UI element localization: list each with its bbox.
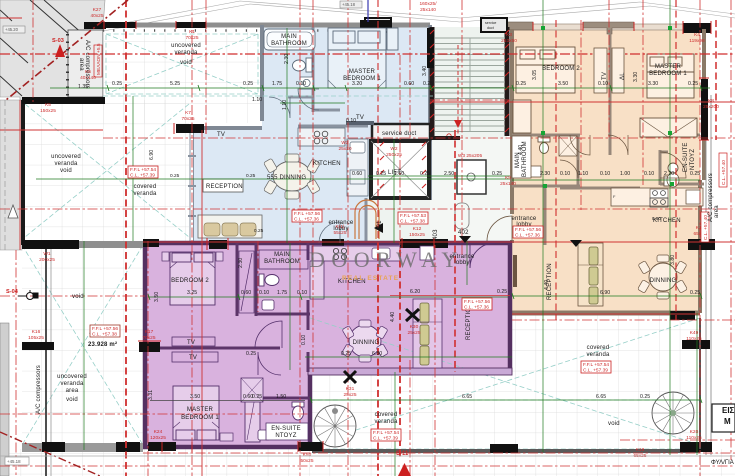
svg-text:Μ: Μ (724, 417, 731, 426)
svg-text:C.L. +57.39: C.L. +57.39 (373, 436, 398, 442)
svg-text:2.30: 2.30 (284, 54, 290, 64)
svg-text:70x25: 70x25 (181, 116, 194, 122)
svg-text:2.30: 2.30 (540, 171, 550, 177)
svg-text:2.20: 2.20 (664, 171, 674, 177)
svg-text:3.05: 3.05 (532, 70, 538, 80)
svg-text:area: area (78, 58, 84, 71)
svg-text:3.40: 3.40 (422, 66, 428, 76)
svg-text:W2: W2 (341, 140, 349, 146)
svg-text:BEDROOM 1: BEDROOM 1 (181, 415, 219, 421)
svg-text:veranda: veranda (60, 381, 84, 387)
svg-text:6.80: 6.80 (372, 351, 382, 357)
svg-text:401: 401 (377, 220, 383, 231)
svg-text:TV: TV (187, 340, 195, 346)
svg-text:K31: K31 (346, 386, 355, 392)
svg-text:covered: covered (375, 412, 398, 418)
svg-text:REAL ESTATE: REAL ESTATE (342, 275, 399, 282)
svg-text:0.10: 0.10 (600, 171, 610, 177)
svg-text:area: area (66, 388, 79, 394)
svg-text:service duct: service duct (382, 131, 417, 137)
svg-text:1.75: 1.75 (277, 290, 287, 296)
svg-text:K50: K50 (303, 452, 312, 458)
svg-text:covered: covered (134, 184, 157, 190)
svg-text:25x20: 25x20 (338, 146, 351, 152)
svg-text:K5: K5 (45, 102, 51, 108)
svg-text:W3 25x205: W3 25x205 (458, 153, 483, 159)
svg-text:KITCHEN: KITCHEN (313, 161, 341, 167)
svg-text:W1: W1 (43, 251, 51, 257)
svg-text:C.L. +57.38: C.L. +57.38 (400, 219, 425, 225)
svg-text:0.60: 0.60 (352, 171, 362, 177)
svg-text:BATHROOM: BATHROOM (271, 41, 307, 47)
svg-text:W2: W2 (390, 146, 398, 152)
svg-text:K49: K49 (690, 330, 699, 336)
svg-text:BEDROOM 2: BEDROOM 2 (171, 278, 209, 284)
svg-text:C.L. +57.39: C.L. +57.39 (130, 173, 155, 179)
svg-text:K4: K4 (694, 32, 700, 38)
svg-text:0.10: 0.10 (296, 81, 306, 87)
svg-text:3.80: 3.80 (670, 255, 676, 265)
svg-text:0.25: 0.25 (243, 81, 253, 87)
svg-text:S-03: S-03 (52, 38, 64, 44)
svg-text:1.00: 1.00 (620, 171, 630, 177)
svg-text:veranda: veranda (133, 191, 157, 197)
svg-text:0.60: 0.60 (652, 216, 661, 221)
svg-text:105x25: 105x25 (28, 335, 44, 341)
svg-text:6.65: 6.65 (462, 394, 472, 400)
svg-text:A/C compressors: A/C compressors (36, 365, 42, 414)
svg-text:MASTER: MASTER (349, 69, 376, 75)
svg-text:RECEPTION: RECEPTION (206, 184, 243, 190)
svg-text:1.35: 1.35 (78, 84, 88, 90)
svg-text:TV: TV (356, 115, 364, 121)
svg-text:0.25: 0.25 (420, 171, 430, 177)
svg-text:NTOYZ: NTOYZ (275, 433, 296, 439)
svg-text:40x25: 40x25 (90, 13, 103, 19)
svg-text:K12: K12 (413, 226, 422, 232)
svg-text:K18: K18 (636, 447, 645, 453)
svg-text:0.10: 0.10 (644, 171, 654, 177)
svg-text:TV: TV (189, 355, 197, 361)
svg-text:3.30: 3.30 (648, 81, 658, 87)
svg-text:0.25: 0.25 (170, 173, 180, 179)
svg-text:0.25: 0.25 (341, 351, 351, 357)
svg-text:3.50: 3.50 (558, 81, 568, 87)
svg-text:K9: K9 (505, 175, 511, 181)
svg-text:4.40: 4.40 (390, 312, 396, 322)
svg-text:area: area (714, 205, 720, 218)
svg-text:0.10: 0.10 (259, 290, 269, 296)
svg-text:2.30: 2.30 (238, 258, 244, 268)
svg-text:110x25: 110x25 (686, 435, 702, 441)
svg-text:3.31: 3.31 (148, 390, 154, 400)
svg-text:2.50: 2.50 (444, 171, 454, 177)
svg-text:K3: K3 (506, 32, 512, 38)
svg-text:void: void (608, 421, 620, 427)
svg-text:K24: K24 (154, 429, 163, 435)
svg-text:K20: K20 (690, 429, 699, 435)
svg-text:K27: K27 (93, 7, 102, 13)
svg-text:F.F.L +57.53: F.F.L +57.53 (400, 213, 426, 219)
svg-text:0.60: 0.60 (404, 81, 414, 87)
svg-text:25x200: 25x200 (703, 104, 719, 110)
svg-text:0.25: 0.25 (640, 394, 650, 400)
svg-text:3.50: 3.50 (154, 292, 160, 302)
svg-text:4.40: 4.40 (544, 280, 550, 290)
svg-text:C.L. +57.36: C.L. +57.36 (515, 233, 540, 239)
svg-text:BATHROOM: BATHROOM (264, 259, 300, 265)
svg-text:void: void (60, 168, 72, 174)
svg-text:50x25: 50x25 (300, 458, 313, 464)
svg-text:0.10: 0.10 (297, 290, 307, 296)
svg-text:1.60: 1.60 (394, 171, 404, 177)
svg-text:NTOYZ: NTOYZ (690, 149, 696, 170)
svg-text:duct: duct (487, 26, 494, 30)
svg-text:F.F.L +57.56: F.F.L +57.56 (294, 211, 320, 217)
svg-text:250x25: 250x25 (386, 152, 402, 158)
svg-text:MAIN: MAIN (281, 34, 297, 40)
svg-text:DINNING: DINNING (650, 278, 677, 284)
svg-text:F.F.L +57.56: F.F.L +57.56 (515, 227, 541, 233)
svg-text:MASTER: MASTER (187, 407, 214, 413)
svg-text:F.F.L +57.54: F.F.L +57.54 (373, 430, 399, 436)
svg-text:veranda: veranda (174, 50, 198, 56)
svg-text:120x25: 120x25 (150, 435, 166, 441)
svg-text:403: 403 (433, 229, 439, 240)
svg-text:5.25: 5.25 (170, 81, 180, 87)
svg-text:55x25: 55x25 (333, 230, 346, 236)
svg-text:DOORWAY: DOORWAY (309, 247, 464, 272)
svg-text:C.L. +57.36: C.L. +57.36 (294, 217, 319, 223)
svg-text:119x98: 119x98 (689, 38, 705, 44)
svg-text:K8: K8 (708, 98, 714, 104)
svg-text:K17: K17 (145, 329, 154, 335)
svg-text:4.40: 4.40 (518, 145, 524, 155)
svg-text:BEDROOM 1: BEDROOM 1 (649, 71, 687, 77)
svg-text:23.928 m²: 23.928 m² (88, 341, 117, 348)
svg-text:0.25: 0.25 (497, 289, 507, 295)
svg-text:veranda: veranda (54, 161, 78, 167)
svg-text:253x50: 253x50 (501, 38, 517, 44)
svg-text:ΕΙΣ: ΕΙΣ (722, 406, 735, 415)
svg-text:3.20: 3.20 (352, 81, 362, 87)
svg-text:0.25: 0.25 (423, 81, 433, 87)
svg-text:K7: K7 (185, 110, 191, 116)
svg-text:0.25: 0.25 (690, 171, 700, 177)
svg-text:uncovered: uncovered (51, 154, 81, 160)
svg-text:25x25: 25x25 (343, 392, 356, 398)
svg-text:MASTER: MASTER (655, 64, 682, 70)
svg-text:veranda: veranda (374, 419, 398, 425)
svg-text:0.25: 0.25 (492, 171, 502, 177)
svg-text:uncovered: uncovered (171, 43, 201, 49)
svg-text:BEDROOM 1: BEDROOM 1 (343, 76, 381, 82)
svg-text:0.25: 0.25 (688, 81, 698, 87)
svg-text:F.F.L +57.54: F.F.L +57.54 (583, 362, 609, 368)
svg-text:1.50: 1.50 (276, 394, 286, 400)
svg-text:C.L. +57.38: C.L. +57.38 (92, 332, 117, 338)
svg-text:K16: K16 (32, 329, 41, 335)
svg-text:+45.20: +45.20 (5, 27, 19, 32)
svg-text:veranda: veranda (586, 352, 610, 358)
svg-text:K6: K6 (85, 69, 91, 75)
svg-text:F.F.L +57.56: F.F.L +57.56 (92, 326, 118, 332)
svg-text:6.90: 6.90 (149, 150, 155, 160)
svg-text:uncovered: uncovered (57, 374, 87, 380)
svg-text:ΦΥΛ/ΓΙΑ: ΦΥΛ/ΓΙΑ (711, 460, 734, 466)
svg-text:25x140: 25x140 (500, 181, 516, 187)
svg-text:70x25: 70x25 (185, 35, 198, 41)
svg-text:0.10: 0.10 (560, 171, 570, 177)
svg-text:70x25: 70x25 (142, 335, 155, 341)
svg-text:0.25: 0.25 (376, 171, 386, 177)
svg-text:0.25: 0.25 (252, 394, 262, 400)
svg-text:ΔL: ΔL (620, 72, 626, 80)
svg-text:200x25: 200x25 (39, 257, 55, 263)
svg-text:6.65: 6.65 (596, 394, 606, 400)
svg-text:0.10: 0.10 (598, 81, 608, 87)
svg-text:C.L. +57.36: C.L. +57.36 (464, 305, 489, 311)
svg-text:1.10: 1.10 (282, 100, 288, 110)
svg-text:TV: TV (217, 132, 225, 138)
svg-text:void: void (66, 397, 78, 403)
svg-text:1.10: 1.10 (252, 97, 262, 103)
svg-text:DINNING: DINNING (353, 340, 380, 346)
svg-text:0.25: 0.25 (690, 290, 700, 296)
svg-text:S-04: S-04 (6, 289, 19, 295)
svg-text:6.90: 6.90 (600, 290, 610, 296)
svg-text:F.F.L +57.56: F.F.L +57.56 (464, 299, 490, 305)
svg-text:K30: K30 (410, 324, 419, 330)
svg-text:void: void (72, 294, 84, 300)
svg-text:0.25: 0.25 (254, 228, 264, 234)
svg-text:555 DINNING: 555 DINNING (267, 175, 306, 181)
svg-text:K(1): K(1) (335, 224, 344, 230)
svg-text:110x25: 110x25 (686, 336, 702, 342)
svg-text:K1: K1 (189, 29, 195, 35)
svg-text:BEDROOM 2: BEDROOM 2 (542, 66, 580, 72)
svg-text:3.50: 3.50 (190, 394, 200, 400)
svg-text:402: 402 (458, 230, 469, 236)
svg-text:3.30: 3.30 (633, 72, 639, 82)
svg-text:150x25: 150x25 (409, 232, 425, 238)
svg-text:0.25: 0.25 (516, 81, 526, 87)
svg-text:MAIN: MAIN (274, 252, 290, 258)
svg-text:3.25: 3.25 (187, 290, 197, 296)
svg-text:0.25: 0.25 (112, 81, 122, 87)
svg-text:25x25: 25x25 (407, 330, 420, 336)
svg-text:EN-SUITE: EN-SUITE (683, 142, 689, 172)
svg-text:0.10: 0.10 (346, 118, 356, 124)
svg-text:+45.18: +45.18 (7, 459, 21, 464)
svg-text:160x25/: 160x25/ (419, 1, 437, 7)
svg-text:0.60: 0.60 (241, 290, 251, 296)
svg-text:150x25: 150x25 (40, 108, 56, 114)
svg-text:0.25: 0.25 (246, 351, 256, 357)
svg-text:ΜΕΛΛΟΝ +5.5: ΜΕΛΛΟΝ +5.5 (96, 43, 102, 75)
svg-text:TV: TV (602, 72, 608, 80)
svg-text:service: service (485, 21, 496, 25)
svg-text:+45.18: +45.18 (342, 2, 356, 7)
svg-text:C.L. +57.39: C.L. +57.39 (583, 368, 608, 374)
svg-text:1.10: 1.10 (578, 171, 588, 177)
svg-text:0.25: 0.25 (246, 173, 256, 179)
svg-text:void: void (180, 60, 192, 66)
svg-text:6.20: 6.20 (410, 289, 420, 295)
svg-text:0.10: 0.10 (301, 335, 307, 345)
svg-text:EN-SUITE: EN-SUITE (271, 426, 301, 432)
svg-text:C.L. +57.40: C.L. +57.40 (721, 160, 727, 185)
svg-text:25x140: 25x140 (420, 7, 436, 13)
svg-text:covered: covered (587, 345, 610, 351)
svg-text:1.75: 1.75 (272, 81, 282, 87)
svg-text:F.F.L +57.54: F.F.L +57.54 (130, 167, 156, 173)
